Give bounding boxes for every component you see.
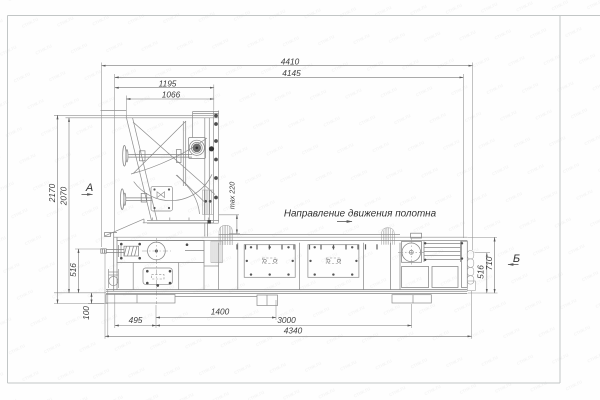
svg-text:4410: 4410 <box>281 56 300 66</box>
svg-text:Б: Б <box>513 253 520 265</box>
svg-text:1400: 1400 <box>211 306 230 316</box>
svg-text:2170: 2170 <box>47 183 57 203</box>
svg-text:3000: 3000 <box>277 315 296 325</box>
svg-text:А: А <box>85 182 93 194</box>
svg-text:2070: 2070 <box>58 186 68 206</box>
svg-text:495: 495 <box>129 315 143 325</box>
svg-text:516: 516 <box>68 263 78 277</box>
svg-text:4340: 4340 <box>284 326 303 336</box>
svg-text:Направление движения полотна: Направление движения полотна <box>284 209 437 220</box>
svg-text:max 220: max 220 <box>228 182 237 210</box>
svg-text:4145: 4145 <box>282 68 301 78</box>
svg-text:1066: 1066 <box>162 90 181 100</box>
svg-text:1195: 1195 <box>159 78 177 88</box>
svg-text:710: 710 <box>484 256 494 270</box>
svg-text:100: 100 <box>81 306 91 320</box>
